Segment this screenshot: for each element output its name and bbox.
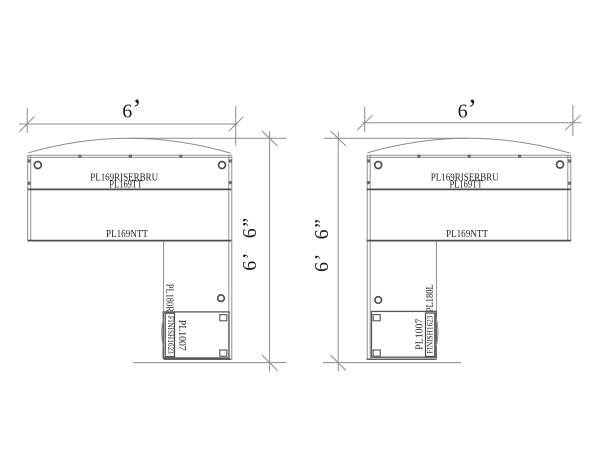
svg-text:PL1007: PL1007 (414, 319, 425, 350)
svg-text:PL169NTT: PL169NTT (106, 228, 148, 240)
svg-text:PL169TT: PL169TT (109, 178, 142, 190)
svg-text:6’: 6’ (122, 94, 141, 125)
svg-text:PL1007: PL1007 (176, 320, 187, 351)
svg-text:6’ 6”: 6’ 6” (311, 219, 333, 272)
svg-text:PL180R: PL180R (164, 284, 175, 312)
svg-text:FINISH1623: FINISH1623 (166, 316, 175, 354)
svg-text:6’: 6’ (458, 94, 477, 125)
svg-text:6’ 6”: 6’ 6” (239, 218, 261, 271)
svg-text:PL169NTT: PL169NTT (446, 228, 488, 240)
svg-text:PL169TT: PL169TT (450, 178, 483, 190)
svg-text:PL180L: PL180L (425, 284, 436, 312)
svg-text:FINISH1623: FINISH1623 (425, 316, 434, 354)
